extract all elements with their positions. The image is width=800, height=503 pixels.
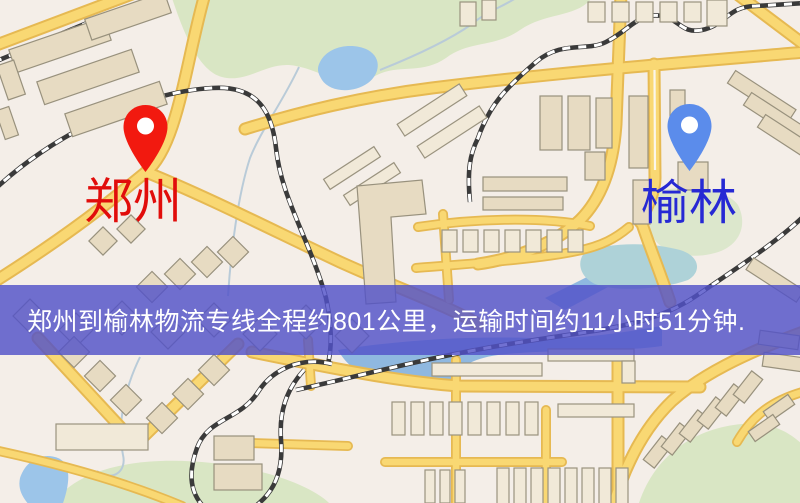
building-bar-bottom-left [56,424,148,450]
map-image [0,0,800,503]
origin-label: 郑州 [84,177,182,226]
origin-pin[interactable] [122,104,169,179]
destination-pin-icon [666,103,713,173]
building-strip-squares [442,230,583,252]
destination-label: 榆林 [641,180,737,228]
origin-pin-icon [122,104,169,174]
destination-pin[interactable] [666,103,713,178]
route-info-text: 郑州到榆林物流专线全程约801公里，运输时间约11小时51分钟. [27,302,745,338]
map-screenshot: 郑州 榆林 郑州到榆林物流专线全程约801公里，运输时间约11小时51分钟. [0,0,800,503]
teal-lake [580,244,697,289]
road-median-line [655,70,656,170]
route-info-banner: 郑州到榆林物流专线全程约801公里，运输时间约11小时51分钟. [0,285,800,355]
